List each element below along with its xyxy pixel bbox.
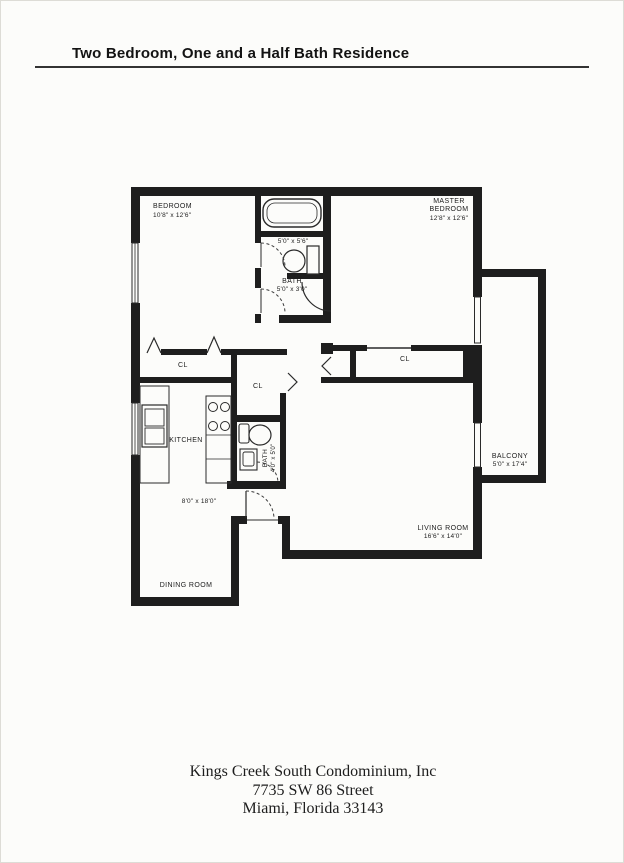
bathtub-icon — [263, 199, 321, 227]
main-bath-label: BATH — [275, 278, 309, 286]
bath-vanity-dims: 5'0" x 5'6" — [271, 238, 315, 246]
living-room-label: LIVING ROOM — [403, 525, 483, 533]
dining-room-label: DINING ROOM — [146, 582, 226, 590]
bedroom-dims: 10'8" x 12'6" — [153, 212, 191, 220]
living-room-dims: 16'6" x 14'0" — [403, 533, 483, 541]
master-bedroom-label-2: BEDROOM — [419, 206, 479, 214]
stove-icon — [209, 403, 230, 431]
kitchen-label: KITCHEN — [161, 437, 211, 445]
sink-icon — [240, 449, 257, 470]
half-bath-label-group: BATH 4'0" x 5'0" — [262, 435, 278, 481]
footer-line-2: 7735 SW 86 Street — [1, 782, 624, 801]
main-bath-dims: 5'0" x 3'0" — [269, 286, 315, 294]
closet-bedroom-label: CL — [178, 362, 188, 370]
balcony-label: BALCONY — [480, 453, 540, 461]
walls — [131, 187, 546, 606]
floorplan-drawing — [1, 1, 624, 863]
half-bath-dims: 4'0" x 5'0" — [270, 435, 278, 481]
footer-line-3: Miami, Florida 33143 — [1, 800, 624, 819]
toilet-icon — [283, 246, 319, 274]
footer-address: Kings Creek South Condominium, Inc 7735 … — [1, 763, 624, 819]
bedroom-label: BEDROOM — [153, 203, 192, 211]
closet-master-label: CL — [400, 356, 410, 364]
closet-hall-label: CL — [253, 383, 263, 391]
footer-line-1: Kings Creek South Condominium, Inc — [1, 763, 624, 782]
master-bedroom-label-1: MASTER — [419, 198, 479, 206]
dining-room-dims: 8'0" x 18'0" — [168, 498, 230, 506]
floorplan-page: Two Bedroom, One and a Half Bath Residen… — [0, 0, 624, 863]
balcony-dims: 5'0" x 17'4" — [480, 461, 540, 469]
master-bedroom-dims: 12'8" x 12'6" — [419, 215, 479, 223]
half-bath-label: BATH — [262, 435, 270, 481]
